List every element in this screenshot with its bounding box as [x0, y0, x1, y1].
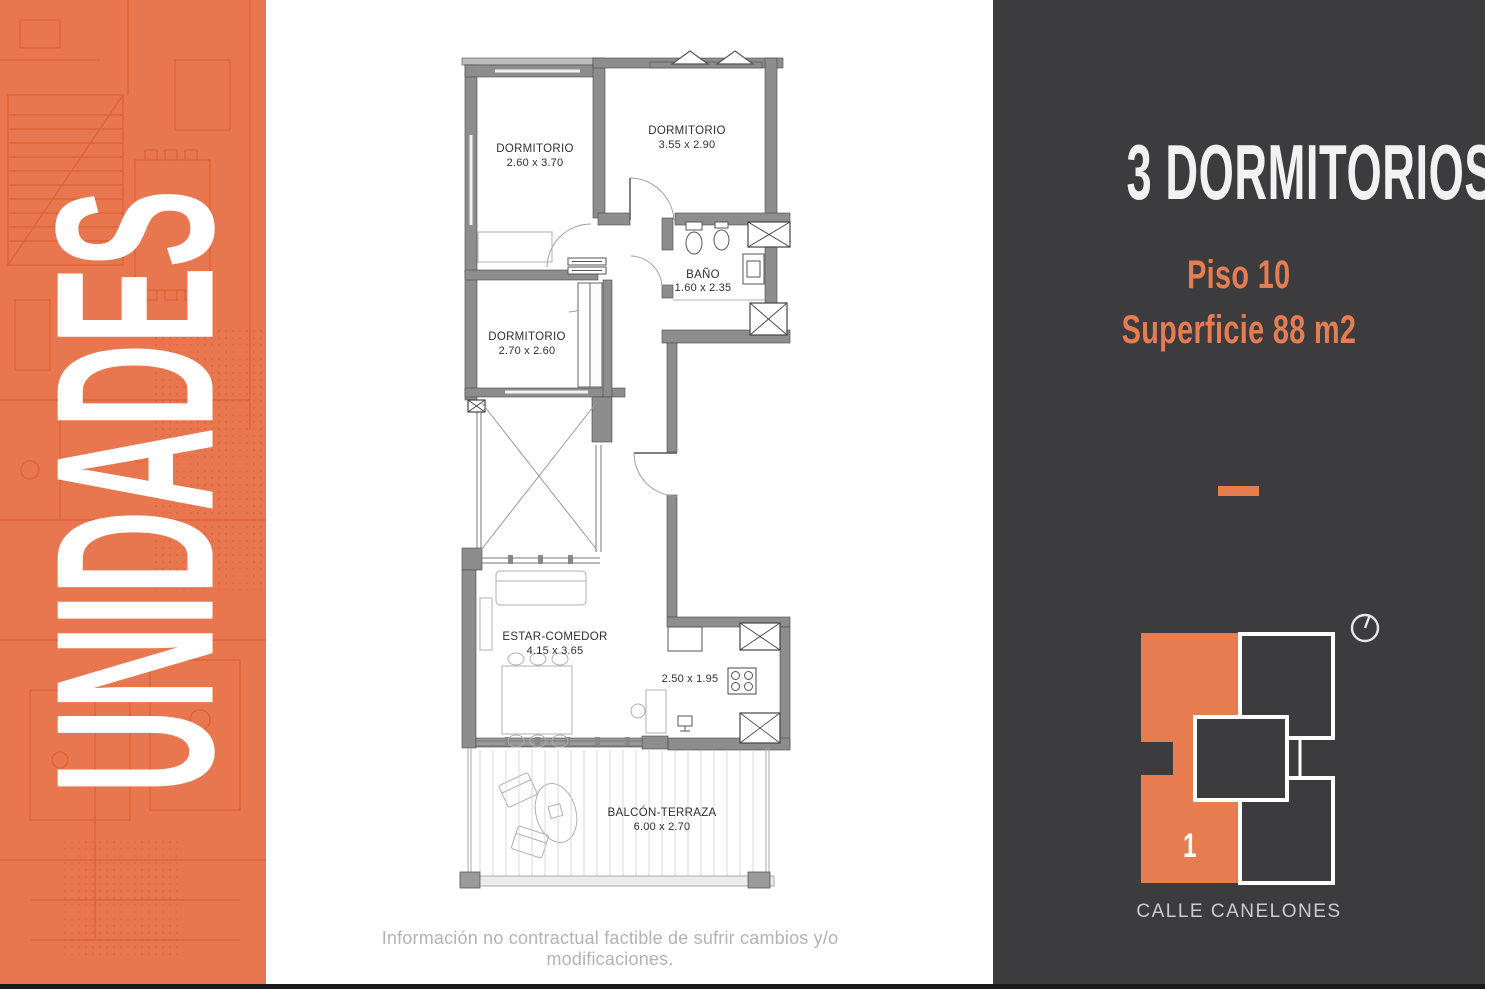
street-label: CALLE CANELONES: [993, 901, 1485, 923]
room-dims-bedroom3: 2.70 x 2.60: [499, 345, 556, 357]
room-dims-balcony: 6.00 x 2.70: [634, 821, 691, 833]
units-vertical-title: UNIDADES: [23, 191, 248, 794]
floor-label: Piso 10: [1187, 252, 1290, 299]
room-dims-bathroom: 1.60 x 2.35: [675, 282, 732, 294]
room-dims-living: 4.15 x 3.65: [527, 645, 584, 657]
building-footprint-diagram: 1: [1120, 605, 1380, 895]
room-dims-bedroom1: 2.60 x 3.70: [507, 157, 564, 169]
courtyard-outline: [1195, 717, 1287, 800]
sliding-doors: [568, 258, 606, 274]
room-label-bedroom2: DORMITORIO: [648, 125, 726, 137]
room-label-balcony: BALCÓN-TERRAZA: [608, 806, 717, 819]
room-label-living: ESTAR-COMEDOR: [502, 631, 607, 643]
room-label-bedroom1: DORMITORIO: [496, 143, 574, 155]
room-labels: DORMITORIO 2.60 x 3.70 DORMITORIO 3.55 x…: [488, 125, 731, 833]
room-dims-kitchen: 2.50 x 1.95: [662, 673, 719, 685]
compass-icon: [1352, 615, 1378, 641]
panel-title-text: 3 DORMITORIOS: [1126, 128, 1485, 216]
area-label: Superficie 88 m2: [1122, 307, 1357, 354]
unit-number-label: 1: [1183, 827, 1197, 865]
left-banner: UNIDADES: [0, 0, 266, 989]
bottom-border: [0, 984, 1485, 989]
divider-dash: [1218, 486, 1259, 496]
brochure-page: UNIDADES: [0, 0, 1485, 989]
room-label-bedroom3: DORMITORIO: [488, 331, 566, 343]
panel-title: 3 DORMITORIOS: [993, 128, 1485, 239]
furniture: [478, 232, 692, 858]
room-label-bathroom: BAÑO: [686, 268, 720, 281]
info-panel: 3 DORMITORIOS Piso 10 Superficie 88 m2 1: [993, 0, 1485, 989]
disclaimer-text: Información no contractual factible de s…: [350, 928, 870, 970]
floor-plan: DORMITORIO 2.60 x 3.70 DORMITORIO 3.55 x…: [450, 50, 810, 900]
room-dims-bedroom2: 3.55 x 2.90: [659, 139, 716, 151]
panel-subtitle: Piso 10 Superficie 88 m2: [993, 252, 1485, 362]
patio-void: [481, 402, 597, 550]
